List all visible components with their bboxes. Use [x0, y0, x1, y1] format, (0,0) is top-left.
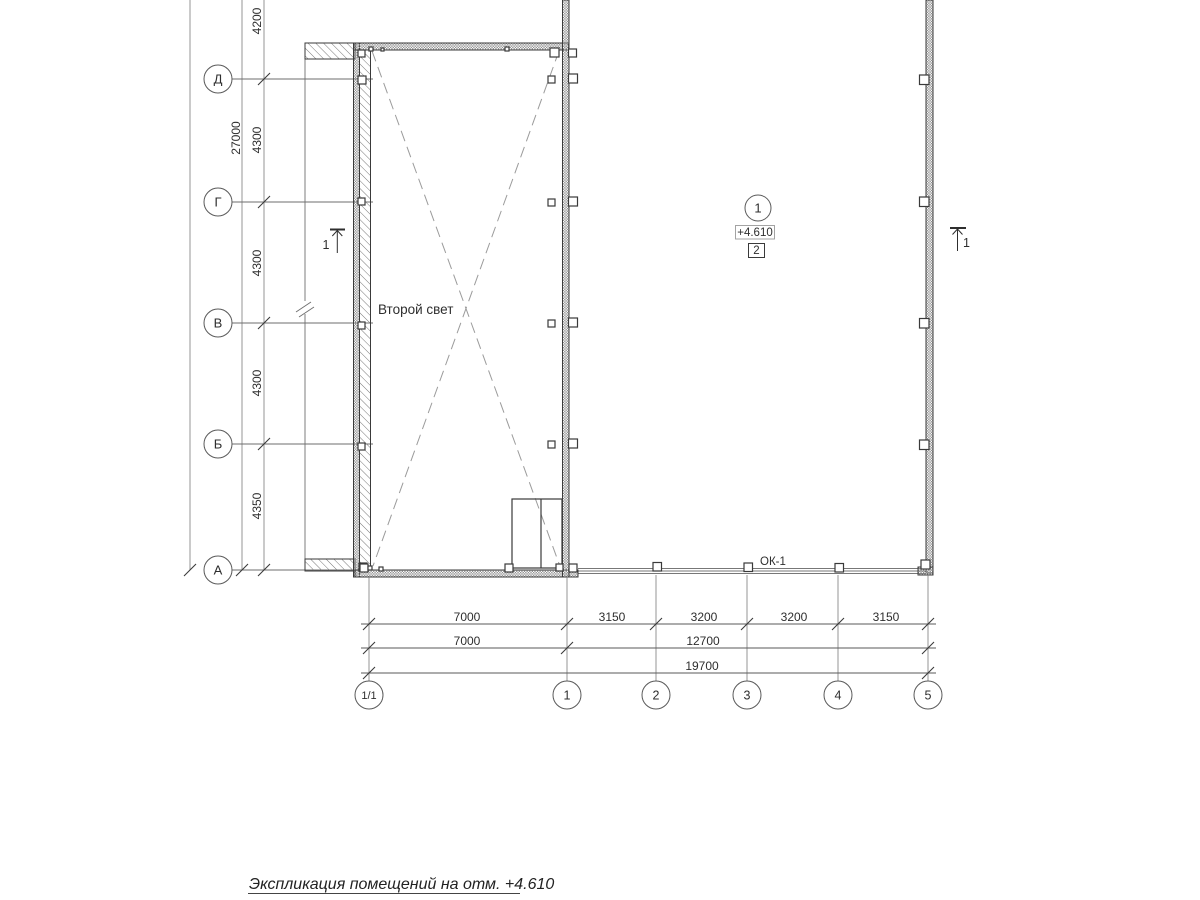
floor-plan-canvas: 4200 27000 4300 4300 4300 4350 Д Г В Б А	[0, 0, 1200, 900]
dim-3150-a: 3150	[599, 610, 626, 624]
dim-span-d-g: 4300	[250, 126, 264, 153]
dim-total-height: 27000	[229, 121, 243, 155]
room-number: 1	[754, 201, 761, 216]
second-light-label: Второй свет	[378, 302, 453, 317]
wall-top-stub	[305, 43, 355, 59]
col-label-1: 1	[564, 689, 571, 703]
dim-3200-b: 3200	[781, 610, 808, 624]
room-elevation: +4.610	[737, 227, 773, 239]
dim-12700: 12700	[686, 634, 720, 648]
wall-right-axis5	[926, 0, 933, 573]
col-label-1-1: 1/1	[361, 690, 376, 702]
dim-7000-b: 7000	[454, 634, 481, 648]
col-label-2: 2	[653, 689, 660, 703]
dim-19700: 19700	[685, 659, 719, 673]
axis-label-g: Г	[214, 195, 221, 210]
wall-middle-axis1	[563, 0, 570, 577]
wall-left-outer-layer	[354, 43, 360, 577]
axis-label-d: Д	[214, 72, 223, 87]
dim-top-span: 4200	[250, 7, 264, 34]
axis-label-a: А	[214, 563, 223, 578]
window-mark-label: ОК-1	[760, 556, 786, 568]
section-mark-left-label: 1	[323, 238, 330, 252]
floor-plan-page: 4200 27000 4300 4300 4300 4350 Д Г В Б А	[0, 0, 1200, 900]
wall-bottom-stub	[305, 559, 355, 571]
wall-left-inner-layer	[360, 50, 371, 570]
wall-top	[355, 43, 569, 50]
col-label-3: 3	[744, 689, 751, 703]
axis-label-v: В	[214, 316, 223, 331]
col-label-4: 4	[835, 689, 842, 703]
dim-3200-a: 3200	[691, 610, 718, 624]
dim-span-v-b: 4300	[250, 369, 264, 396]
sheet-title: Экспликация помещений на отм. +4.610	[249, 876, 554, 893]
dim-7000-a: 7000	[454, 610, 481, 624]
dim-span-g-v: 4300	[250, 249, 264, 276]
axis-label-b: Б	[214, 437, 223, 452]
section-mark-right-label: 1	[963, 236, 970, 250]
wall-bottom	[355, 570, 578, 577]
dim-span-b-a: 4350	[250, 492, 264, 519]
room-zone: 2	[753, 245, 759, 257]
dim-3150-b: 3150	[873, 610, 900, 624]
col-label-5: 5	[925, 689, 932, 703]
paper-background	[0, 0, 1200, 900]
